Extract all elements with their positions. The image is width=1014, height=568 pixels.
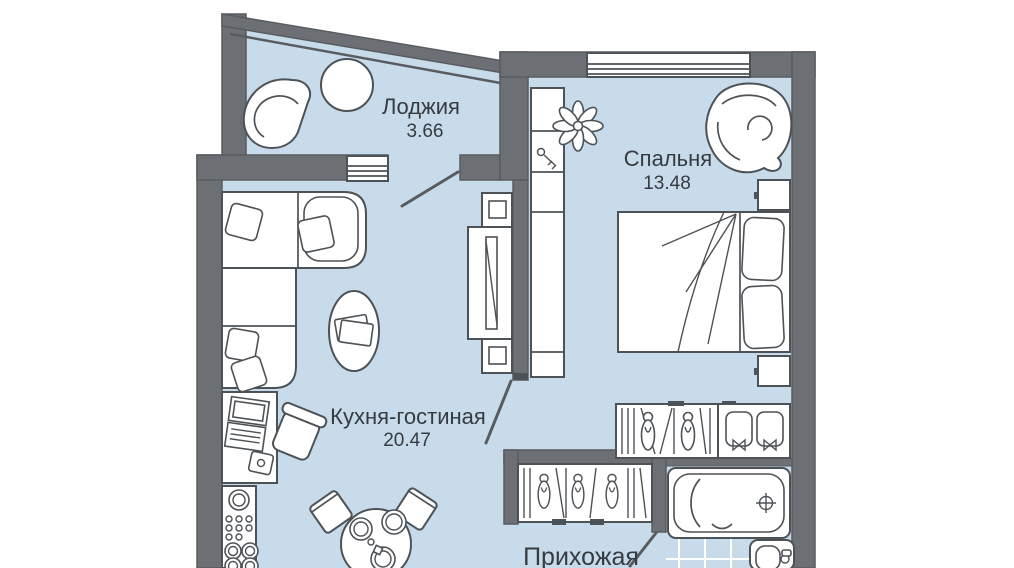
- bedroom-armchair: [706, 83, 791, 172]
- bedroom-label: Спальня: [624, 146, 712, 172]
- wall-bathroom-top: [652, 458, 792, 466]
- kitchen-appliance-block: [222, 486, 258, 568]
- desk: [222, 392, 277, 483]
- sink: [750, 540, 794, 568]
- mouse-pad: [248, 451, 274, 475]
- wall-kitchen-bedroom: [513, 180, 528, 380]
- door-jamb-mark: [513, 373, 528, 380]
- loggia-area: 3.66: [407, 121, 444, 143]
- wall-loggia-bottom-stub: [460, 155, 500, 180]
- floor-plan-canvas: [0, 0, 1014, 568]
- bed-pillow: [741, 217, 784, 281]
- bedroom-closet-row: [616, 401, 790, 458]
- bed-pillow: [741, 285, 784, 349]
- nightstand: [754, 180, 790, 210]
- coffee-table: [329, 291, 379, 371]
- wall-right: [792, 52, 815, 568]
- sofa-pillow: [297, 215, 335, 253]
- hallway-label: Прихожая: [523, 543, 639, 568]
- loggia-table: [321, 59, 373, 111]
- bedroom-area: 13.48: [643, 173, 691, 195]
- bedroom-window: [587, 53, 750, 77]
- floor-plan: Лоджия 3.66 Спальня 13.48 Кухня-гостиная…: [0, 0, 1014, 568]
- loggia-label: Лоджия: [382, 94, 460, 120]
- plant: [553, 101, 603, 151]
- bathtub: [668, 468, 790, 538]
- wall-bathroom-left: [652, 458, 666, 532]
- nightstand: [754, 356, 790, 386]
- hallway-wardrobe: [518, 464, 652, 525]
- loggia-window-unit: [347, 156, 388, 181]
- kitchen-living-area: 20.47: [383, 430, 431, 452]
- bed: [618, 212, 790, 352]
- wall-hallway-jamb: [504, 450, 518, 524]
- wall-kitchen-left: [197, 155, 222, 568]
- kitchen-living-label: Кухня-гостиная: [330, 404, 486, 430]
